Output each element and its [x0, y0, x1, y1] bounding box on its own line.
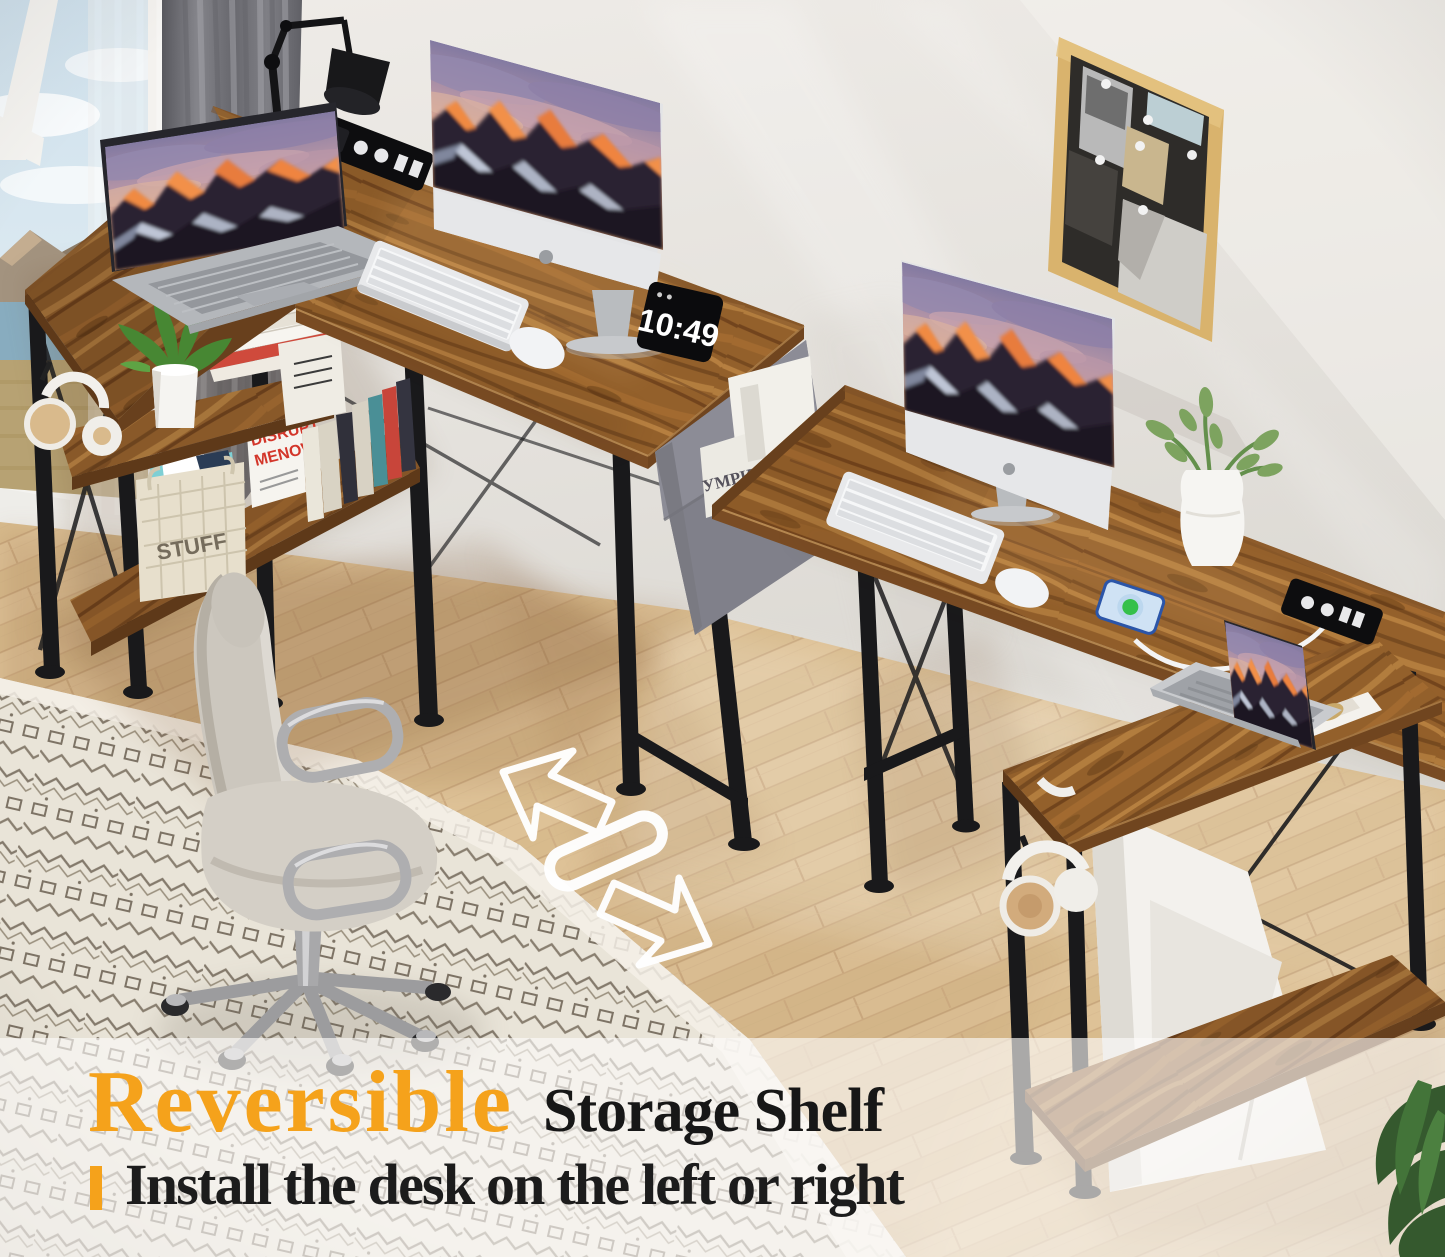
svg-text:Install the desk on the left o: Install the desk on the left or right — [125, 1152, 906, 1217]
svg-text:Reversible: Reversible — [88, 1054, 514, 1151]
svg-text:Storage Shelf: Storage Shelf — [543, 1077, 885, 1145]
